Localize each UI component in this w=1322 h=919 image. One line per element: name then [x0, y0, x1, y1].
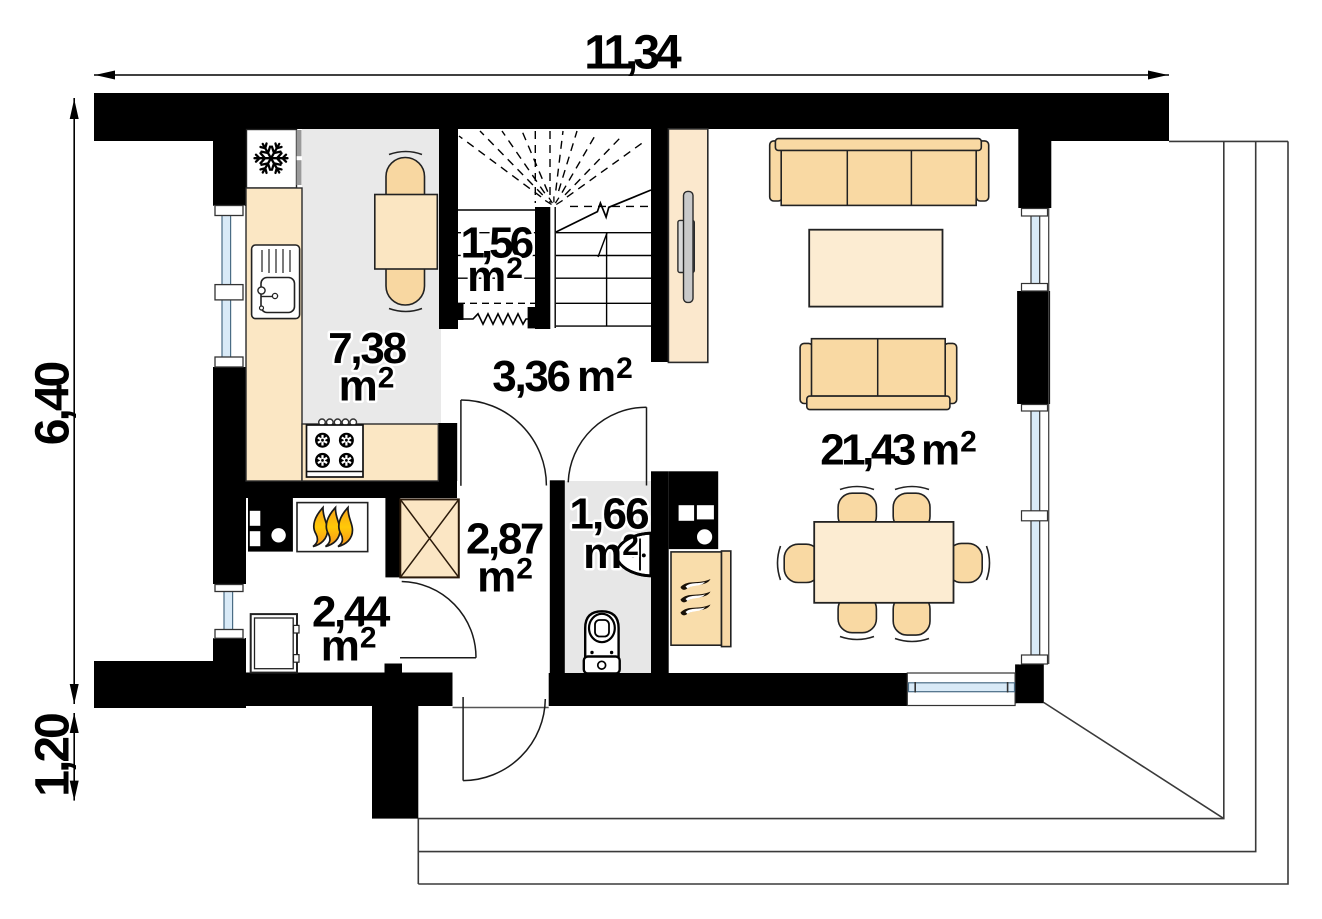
svg-text:1,20: 1,20 [27, 714, 80, 797]
svg-text:11,34: 11,34 [584, 27, 682, 80]
svg-text:3,36: 3,36 [492, 352, 569, 401]
svg-text:6,40: 6,40 [27, 362, 80, 445]
svg-text:21,43: 21,43 [820, 426, 915, 475]
